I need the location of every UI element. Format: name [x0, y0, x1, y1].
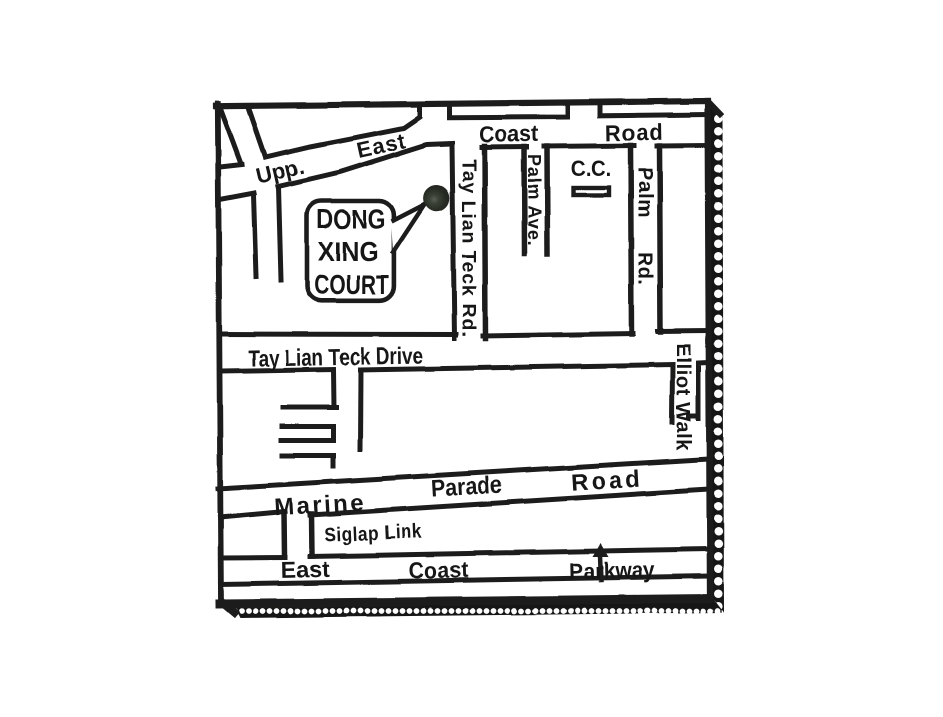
- svg-text:Rd.: Rd.: [633, 252, 655, 286]
- svg-text:East: East: [354, 128, 409, 163]
- svg-text:Parade: Parade: [430, 470, 503, 502]
- svg-text:East: East: [280, 556, 329, 583]
- svg-text:COURT: COURT: [314, 270, 389, 301]
- svg-text:Parkway: Parkway: [569, 556, 655, 584]
- svg-text:Marine: Marine: [273, 489, 366, 521]
- svg-text:Coast: Coast: [409, 556, 469, 583]
- svg-text:Road: Road: [570, 466, 644, 497]
- svg-text:Palm Ave.: Palm Ave.: [524, 154, 544, 246]
- svg-text:XING: XING: [318, 235, 378, 267]
- svg-text:Tay Lian Teck Drive: Tay Lian Teck Drive: [248, 341, 424, 372]
- svg-text:Tay Lian Teck Rd.: Tay Lian Teck Rd.: [458, 159, 480, 337]
- svg-text:Road: Road: [605, 119, 664, 146]
- svg-text:Siglap Link: Siglap Link: [324, 519, 423, 546]
- svg-text:DONG: DONG: [317, 205, 386, 236]
- svg-text:Coast: Coast: [479, 120, 539, 147]
- svg-text:Palm: Palm: [633, 167, 655, 217]
- svg-text:Elliot Walk: Elliot Walk: [672, 344, 694, 451]
- svg-text:C.C.: C.C.: [571, 156, 611, 181]
